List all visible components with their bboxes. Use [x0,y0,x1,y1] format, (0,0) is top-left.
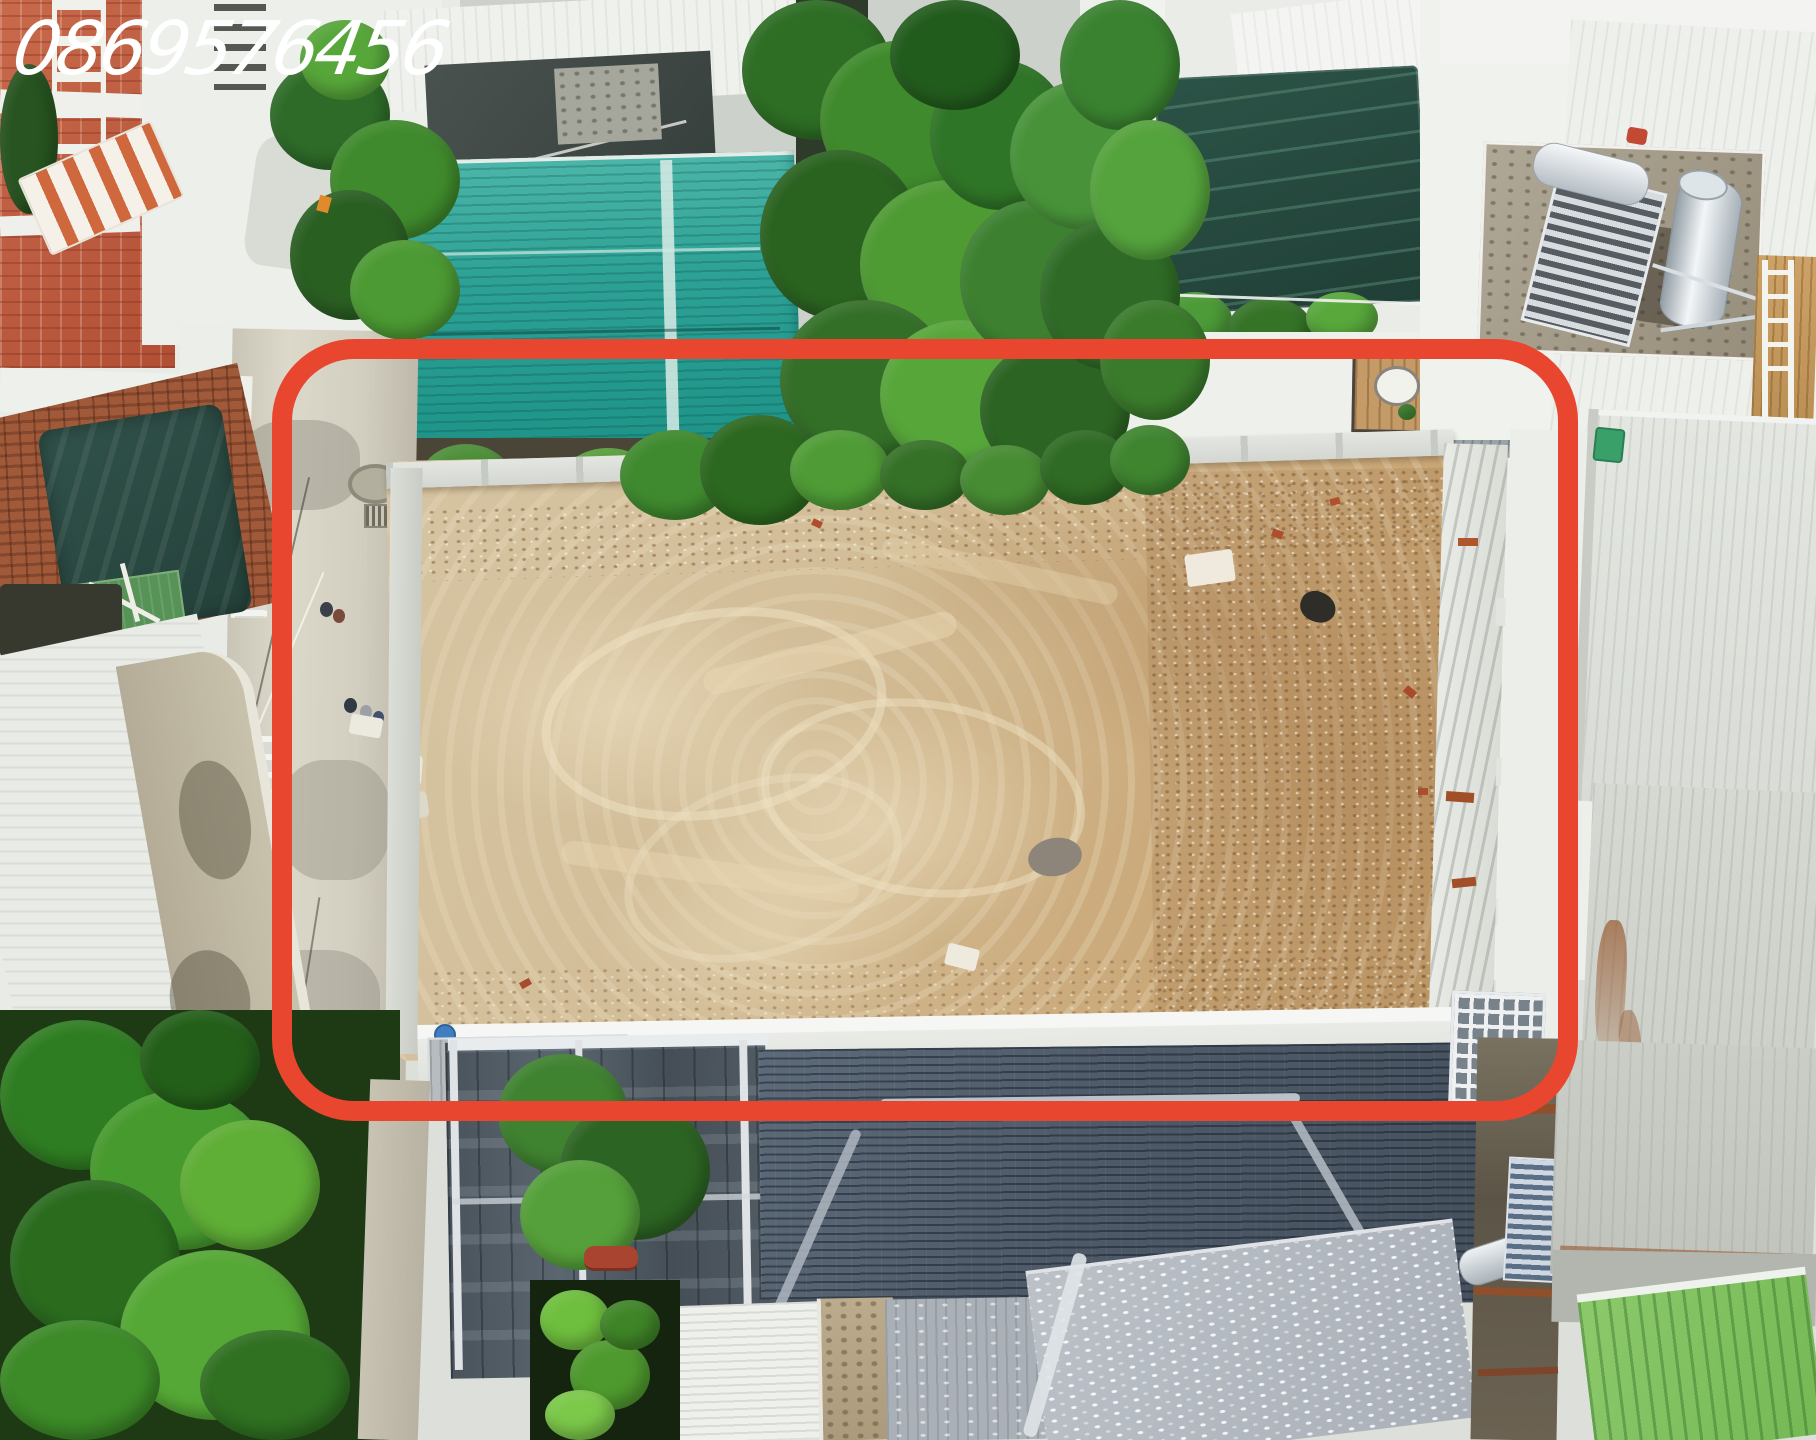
watermark-phone: 0869576456 [6,6,452,92]
tree-canopy [1060,0,1180,130]
ladder-rungs [1762,270,1794,390]
tree-canopy [890,0,1020,110]
red-highlight-rectangle [272,339,1578,1121]
green-bin [1592,427,1625,464]
banana-foliage [0,1320,160,1440]
banana-foliage [140,1010,260,1110]
green-corrugated-roof [1577,1267,1816,1440]
concrete-patch [554,63,662,144]
palm-canopy [350,240,460,340]
palm-frond [600,1300,660,1350]
concrete-post-strip [358,1079,431,1440]
terracotta-planter [584,1246,638,1271]
banana-foliage [200,1330,350,1440]
mossy-valley-band [817,1297,895,1440]
tree-canopy [1090,120,1210,260]
aerial-photo: 0869576456 [0,0,1816,1440]
pale-corrugated-roof [1572,409,1816,811]
red-rooftop-object [1626,126,1648,145]
palm-frond [545,1390,615,1440]
banana-foliage [180,1120,320,1250]
